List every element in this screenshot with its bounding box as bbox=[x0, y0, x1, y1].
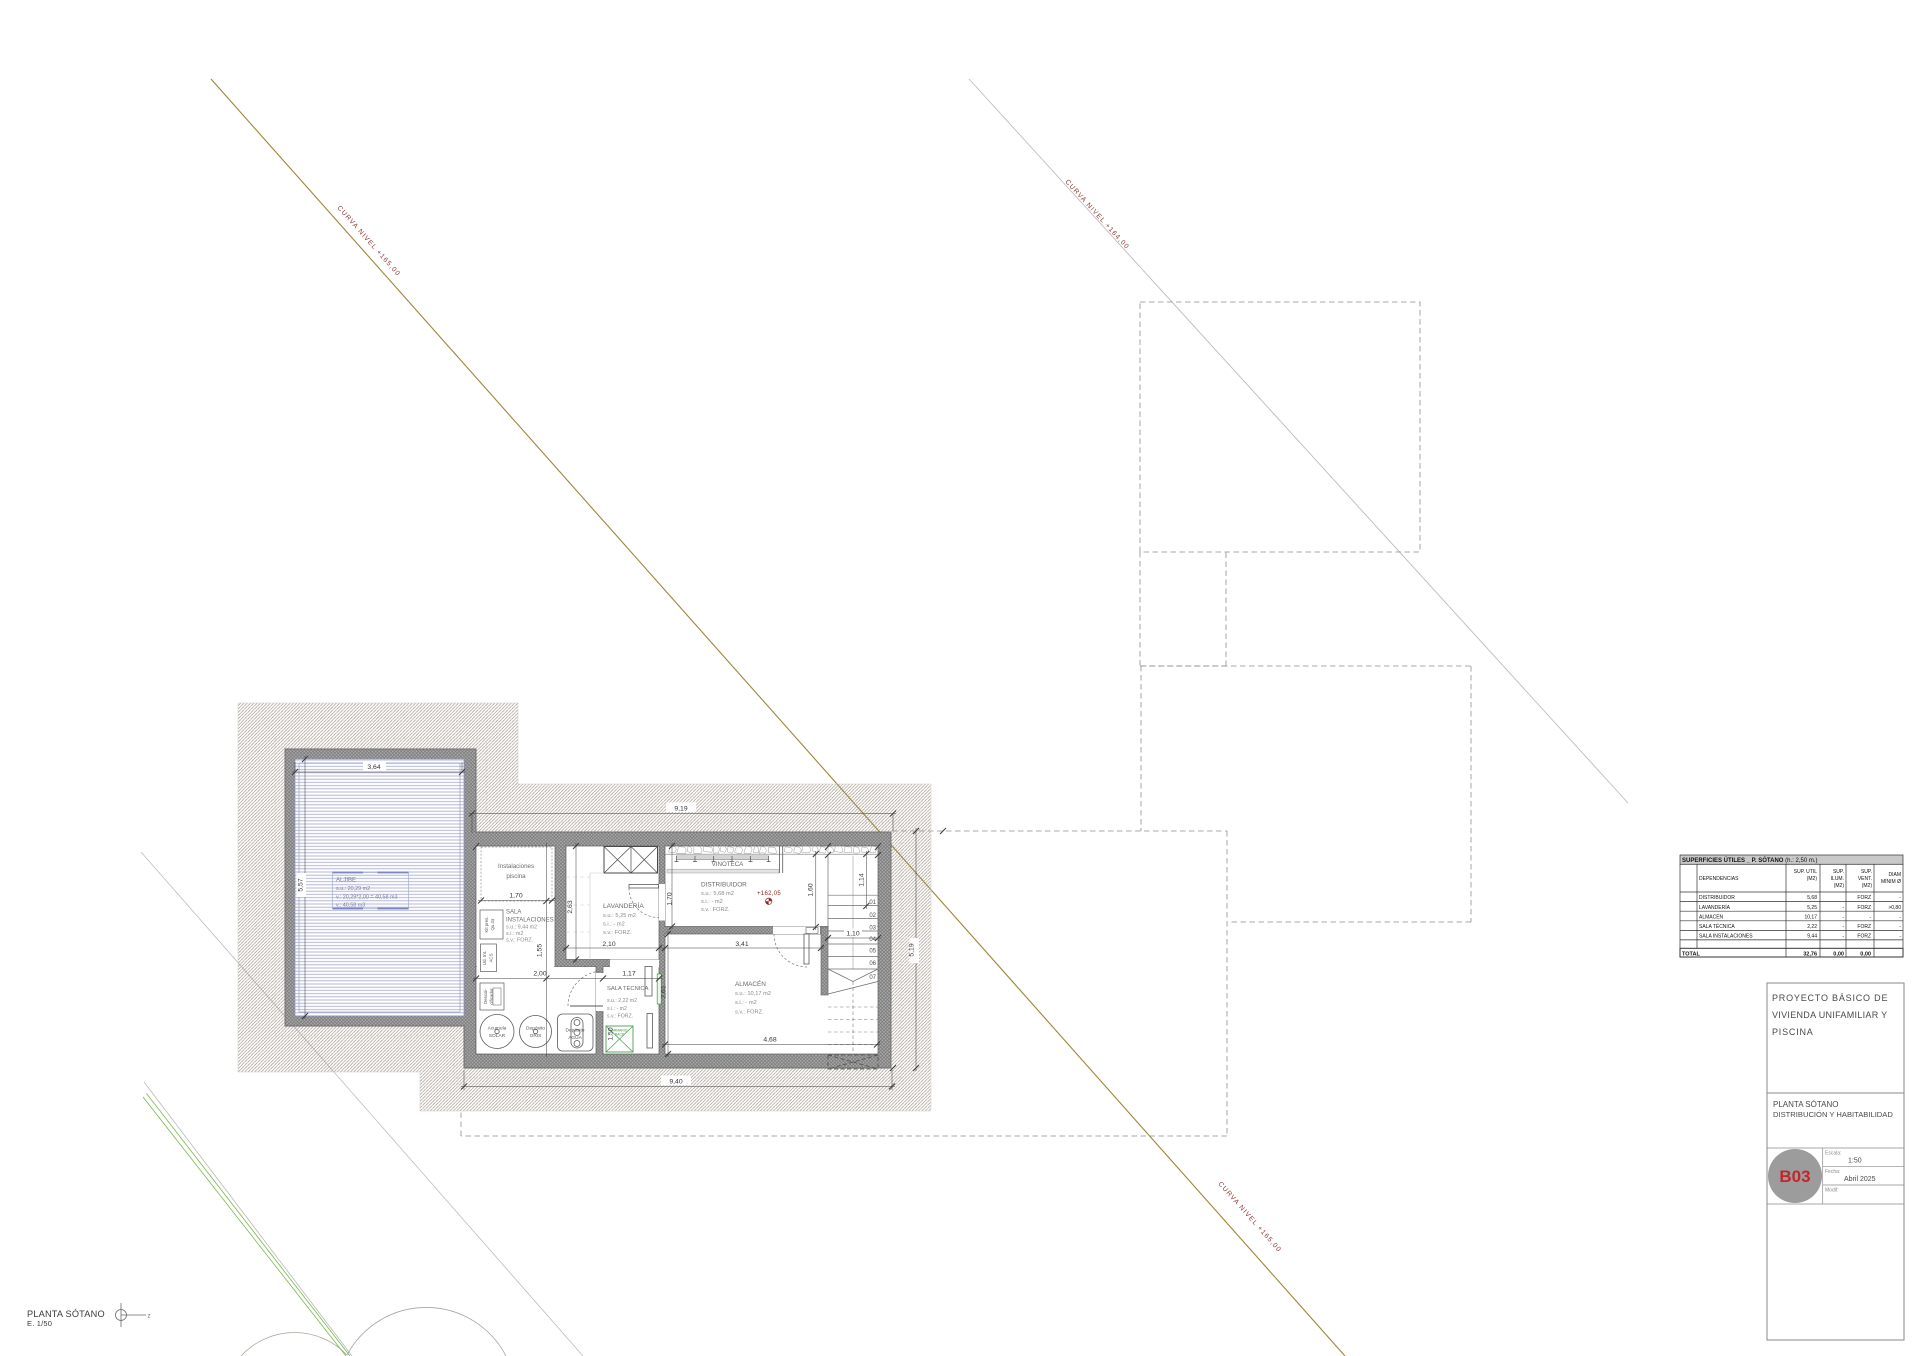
svg-text:1,50: 1,50 bbox=[608, 1027, 615, 1040]
svg-text:LAVANDERÍA: LAVANDERÍA bbox=[1699, 904, 1731, 911]
svg-text:>0,80: >0,80 bbox=[1888, 905, 1901, 911]
svg-text:SOLAR: SOLAR bbox=[489, 1033, 506, 1039]
svg-text:PLANTA SÓTANO: PLANTA SÓTANO bbox=[1773, 1100, 1839, 1109]
svg-text:ACS: ACS bbox=[489, 953, 494, 962]
svg-text:s.u.: 2,22 m2: s.u.: 2,22 m2 bbox=[607, 998, 637, 1004]
svg-text:s.u.: 5,25 m2: s.u.: 5,25 m2 bbox=[603, 913, 636, 919]
svg-text:PISCINA: PISCINA bbox=[1772, 1027, 1814, 1037]
svg-text:02: 02 bbox=[869, 913, 876, 919]
svg-text:s.i.: - m2: s.i.: - m2 bbox=[603, 922, 625, 928]
svg-text:RACK: RACK bbox=[615, 1033, 625, 1037]
svg-text:Ud. Int.: Ud. Int. bbox=[482, 951, 487, 965]
svg-text:ALMACÉN: ALMACÉN bbox=[1699, 913, 1724, 920]
svg-text:ALJIBE: ALJIBE bbox=[336, 878, 356, 884]
svg-text:SALA INSTALACIONES: SALA INSTALACIONES bbox=[1699, 934, 1753, 940]
svg-text:v.: 20,29*2,00 = 40,58 m3: v.: 20,29*2,00 = 40,58 m3 bbox=[336, 895, 398, 901]
svg-text:SUP. UTIL: SUP. UTIL bbox=[1794, 869, 1817, 875]
svg-text:03: 03 bbox=[869, 926, 876, 932]
svg-text:Depósito: Depósito bbox=[566, 1028, 585, 1034]
svg-text:ILUM.: ILUM. bbox=[1831, 876, 1844, 882]
svg-text:cificador: cificador bbox=[489, 988, 494, 1005]
svg-text:1,70: 1,70 bbox=[509, 893, 522, 900]
svg-text:2,00: 2,00 bbox=[533, 971, 546, 978]
svg-text:s.i.: - m2: s.i.: - m2 bbox=[735, 1000, 757, 1006]
svg-text:4,68: 4,68 bbox=[763, 1037, 776, 1044]
svg-text:01: 01 bbox=[869, 900, 876, 906]
svg-text:(M2): (M2) bbox=[1862, 883, 1873, 889]
svg-text:1,55: 1,55 bbox=[537, 944, 544, 957]
svg-text:s.v.: FORZ.: s.v.: FORZ. bbox=[603, 930, 632, 936]
svg-text:9,40: 9,40 bbox=[669, 1079, 682, 1086]
svg-text:Kit pres.: Kit pres. bbox=[484, 916, 489, 932]
svg-text:E. 1/50: E. 1/50 bbox=[27, 1319, 52, 1328]
svg-text:2,10: 2,10 bbox=[602, 941, 615, 948]
svg-text:3,64: 3,64 bbox=[367, 764, 380, 771]
svg-text:2,22: 2,22 bbox=[1807, 924, 1817, 930]
svg-text:9,44: 9,44 bbox=[1807, 934, 1817, 940]
svg-text:VIVIENDA UNIFAMILIAR Y: VIVIENDA UNIFAMILIAR Y bbox=[1772, 1010, 1887, 1020]
svg-text:DEPENDENCIAS: DEPENDENCIAS bbox=[1699, 876, 1739, 882]
svg-text:(M2): (M2) bbox=[1807, 876, 1818, 882]
svg-text:s.v.: FORZ.: s.v.: FORZ. bbox=[506, 938, 533, 944]
svg-text:07: 07 bbox=[869, 975, 876, 981]
svg-text:s.v.: FORZ.: s.v.: FORZ. bbox=[607, 1014, 633, 1020]
svg-text:s.u.: 10,17 m2: s.u.: 10,17 m2 bbox=[735, 991, 771, 997]
svg-text:FORZ: FORZ bbox=[1857, 895, 1871, 901]
svg-text:AGUA: AGUA bbox=[568, 1035, 582, 1041]
svg-text:SUPERFICIES ÚTILES _ P. SÓTANO: SUPERFICIES ÚTILES _ P. SÓTANO (h.: 2,50… bbox=[1682, 856, 1817, 864]
svg-text:VINOTECA: VINOTECA bbox=[712, 861, 745, 868]
svg-text:FORZ: FORZ bbox=[1857, 924, 1871, 930]
svg-text:s.i.: - m2: s.i.: - m2 bbox=[607, 1006, 627, 1012]
svg-text:1,17: 1,17 bbox=[622, 971, 635, 978]
svg-text:+162,05: +162,05 bbox=[757, 891, 781, 897]
svg-text:5,68: 5,68 bbox=[1807, 895, 1817, 901]
svg-text:MÍNIM Ø: MÍNIM Ø bbox=[1881, 878, 1901, 885]
svg-text:5,57: 5,57 bbox=[298, 878, 305, 891]
svg-text:(M2): (M2) bbox=[1834, 883, 1845, 889]
svg-text:DISTRIBUIDOR: DISTRIBUIDOR bbox=[701, 882, 747, 889]
svg-text:s.u.: 20,29 m2: s.u.: 20,29 m2 bbox=[336, 886, 370, 892]
svg-text:Descal-: Descal- bbox=[483, 989, 488, 1004]
svg-text:2,61: 2,61 bbox=[661, 985, 668, 998]
svg-text:s.u.: 5,68 m2: s.u.: 5,68 m2 bbox=[701, 891, 734, 897]
svg-text:10,17: 10,17 bbox=[1804, 914, 1817, 920]
svg-text:0,00: 0,00 bbox=[1860, 951, 1871, 957]
svg-text:Modif:: Modif: bbox=[1825, 1187, 1839, 1193]
svg-text:1,60: 1,60 bbox=[808, 883, 815, 896]
svg-text:LAVANDERÍA: LAVANDERÍA bbox=[603, 901, 644, 910]
svg-text:1:50: 1:50 bbox=[1848, 1158, 1862, 1165]
svg-text:2,63: 2,63 bbox=[567, 900, 574, 913]
svg-text:5,19: 5,19 bbox=[909, 943, 916, 956]
svg-text:VENT.: VENT. bbox=[1858, 876, 1872, 882]
svg-text:9,19: 9,19 bbox=[674, 806, 687, 813]
svg-text:0,00: 0,00 bbox=[1833, 951, 1844, 957]
svg-text:GRIS: GRIS bbox=[530, 1033, 542, 1039]
svg-text:Acumula: Acumula bbox=[488, 1026, 507, 1032]
svg-text:05: 05 bbox=[869, 949, 876, 955]
svg-text:Fecha:: Fecha: bbox=[1825, 1169, 1840, 1175]
svg-text:SUP.: SUP. bbox=[1861, 869, 1872, 875]
svg-text:s.u.: 9,44 m2: s.u.: 9,44 m2 bbox=[506, 925, 537, 931]
svg-text:PROYECTO BÁSICO DE: PROYECTO BÁSICO DE bbox=[1772, 993, 1888, 1003]
svg-text:v.: 40,58 m3: v.: 40,58 m3 bbox=[336, 903, 365, 909]
svg-text:1,14: 1,14 bbox=[859, 873, 866, 886]
svg-text:Instalaciones: Instalaciones bbox=[498, 863, 534, 870]
svg-text:1,10: 1,10 bbox=[846, 931, 859, 938]
svg-text:Abril 2025: Abril 2025 bbox=[1844, 1176, 1876, 1183]
svg-text:s.i.: - m2: s.i.: - m2 bbox=[701, 899, 723, 905]
svg-text:TOTAL: TOTAL bbox=[1682, 951, 1700, 957]
svg-text:s.v.: FORZ.: s.v.: FORZ. bbox=[701, 907, 730, 913]
svg-text:s.v.: FORZ.: s.v.: FORZ. bbox=[735, 1010, 764, 1016]
svg-text:SALA TÉCNICA: SALA TÉCNICA bbox=[607, 985, 649, 992]
svg-text:B03: B03 bbox=[1779, 1167, 1810, 1186]
svg-text:Depósito: Depósito bbox=[526, 1026, 545, 1032]
svg-text:DISTRIBUCIÓN Y HABITABILIDAD: DISTRIBUCIÓN Y HABITABILIDAD bbox=[1773, 1110, 1893, 1119]
svg-text:FORZ: FORZ bbox=[1857, 934, 1871, 940]
svg-text:DISTRIBUIDOR: DISTRIBUIDOR bbox=[1699, 895, 1735, 901]
svg-text:piscina: piscina bbox=[506, 873, 526, 880]
svg-text:Escala:: Escala: bbox=[1825, 1151, 1841, 1157]
svg-text:SALA TÉCNICA: SALA TÉCNICA bbox=[1699, 923, 1735, 930]
svg-text:ALMACÉN: ALMACÉN bbox=[735, 979, 766, 988]
svg-text:z: z bbox=[148, 1314, 151, 1320]
svg-text:SALA: SALA bbox=[506, 910, 521, 916]
svg-text:PLANTA SÓTANO: PLANTA SÓTANO bbox=[27, 1309, 105, 1319]
svg-text:3,41: 3,41 bbox=[735, 941, 748, 948]
svg-text:06: 06 bbox=[869, 961, 876, 967]
svg-text:s.i.: m2: s.i.: m2 bbox=[506, 931, 523, 937]
svg-text:32,76: 32,76 bbox=[1803, 951, 1817, 957]
svg-text:SUP.: SUP. bbox=[1833, 869, 1844, 875]
svg-text:DIAM: DIAM bbox=[1889, 872, 1902, 878]
svg-text:INSTALACIONES: INSTALACIONES bbox=[506, 918, 554, 924]
svg-text:FORZ: FORZ bbox=[1857, 905, 1871, 911]
svg-text:Qu.Gr: Qu.Gr bbox=[490, 918, 495, 930]
svg-text:5,25: 5,25 bbox=[1807, 905, 1817, 911]
svg-text:1,70: 1,70 bbox=[667, 892, 674, 905]
